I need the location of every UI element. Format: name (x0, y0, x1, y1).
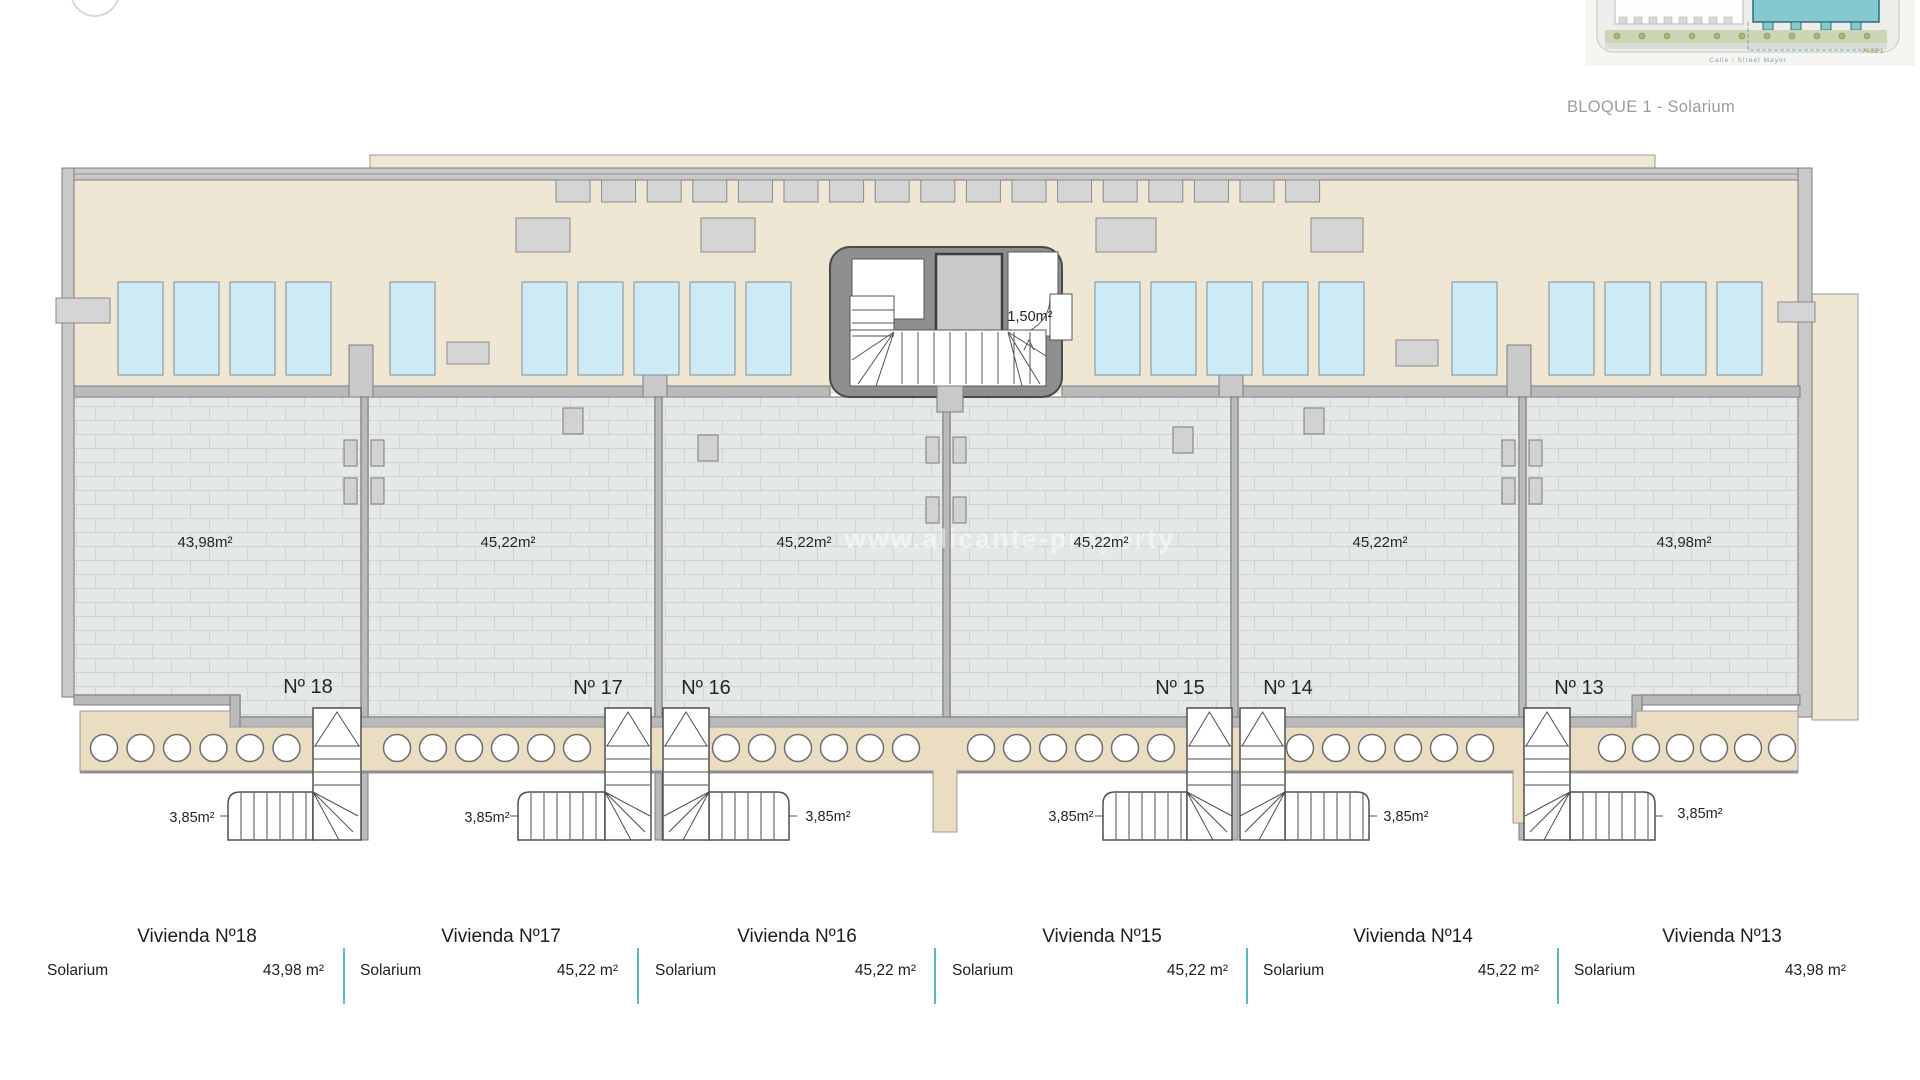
planter (384, 735, 411, 762)
planter (91, 735, 118, 762)
planter (1667, 735, 1694, 762)
roof-vent (693, 180, 727, 202)
solar-panel (174, 282, 219, 375)
party-wall (655, 397, 662, 717)
solar-panel (690, 282, 735, 375)
logo-arc-icon (71, 0, 119, 16)
planter (713, 735, 740, 762)
right-terrace-extension (1812, 294, 1858, 720)
ac-unit (1096, 218, 1156, 252)
party-wall-stub (349, 345, 373, 397)
planter (1395, 735, 1422, 762)
stair-area-label: 3,85m² (464, 810, 509, 826)
ac-unit (516, 218, 570, 252)
unit-number-label: Nº 17 (573, 677, 623, 700)
planter (1076, 735, 1103, 762)
party-wall (361, 397, 368, 717)
planter (821, 735, 848, 762)
ac-unit (447, 342, 489, 364)
chimney-vent (926, 497, 939, 523)
solar-panel (1207, 282, 1252, 375)
left-wall (62, 168, 74, 697)
planter (785, 735, 812, 762)
planter (1735, 735, 1762, 762)
deck-solarium-wall-left (74, 386, 830, 397)
roof-vent (738, 180, 772, 202)
stair-flight (1187, 708, 1232, 840)
solar-panel (578, 282, 623, 375)
stairwell-stub (937, 386, 963, 412)
ac-unit (56, 298, 110, 323)
stair-run (709, 792, 789, 840)
roof-vent (1286, 180, 1320, 202)
party-wall (1231, 397, 1238, 717)
planter (1769, 735, 1796, 762)
roof-vent (784, 180, 818, 202)
chimney-vent (1529, 440, 1542, 466)
planter (200, 735, 227, 762)
site-plan-inset: FASE 1 Calle / Street Mayor (1585, 0, 1915, 66)
roof-vent (1103, 180, 1137, 202)
planter (492, 735, 519, 762)
unit-area-label: 43,98m² (1656, 534, 1711, 551)
ac-unit (1311, 218, 1363, 252)
solar-panel (390, 282, 435, 375)
roof-vent (966, 180, 1000, 202)
stair-flight (605, 708, 651, 840)
unit-area-label: 45,22m² (776, 534, 831, 551)
unit-area-label: 45,22m² (1352, 534, 1407, 551)
solar-panel (286, 282, 331, 375)
chimney-vent (344, 440, 357, 466)
planter (164, 735, 191, 762)
planter (1467, 735, 1494, 762)
planter (1359, 735, 1386, 762)
planter (1323, 735, 1350, 762)
solar-panel (634, 282, 679, 375)
door-leaf (1050, 294, 1072, 340)
solar-panel (1661, 282, 1706, 375)
unit-number-label: Nº 14 (1263, 677, 1313, 700)
unit-number-label: Nº 13 (1554, 677, 1604, 700)
party-wall-stub (1507, 345, 1531, 397)
planter (857, 735, 884, 762)
solar-panel (746, 282, 791, 375)
planter (749, 735, 776, 762)
chimney-vent (371, 478, 384, 504)
stair-flight (313, 708, 361, 840)
unit-area-label: 45,22m² (480, 534, 535, 551)
roof-vent (875, 180, 909, 202)
ac-unit (1778, 302, 1815, 322)
solarium-14-floor (1238, 397, 1519, 717)
ac-unit (701, 218, 755, 252)
planter (1040, 735, 1067, 762)
site-plan-drawing: FASE 1 Calle / Street Mayor (1585, 0, 1915, 66)
deck-solarium-wall-right (1062, 386, 1800, 397)
roof-vent (556, 180, 590, 202)
solar-panel (1263, 282, 1308, 375)
planter (1148, 735, 1175, 762)
planter (273, 735, 300, 762)
stairwell-core (830, 247, 1072, 412)
chimney-vent (1304, 408, 1324, 434)
roof-vent (1149, 180, 1183, 202)
planter (1112, 735, 1139, 762)
stair-run-bottom (850, 330, 1046, 386)
right-wall (1798, 168, 1812, 717)
planter (1004, 735, 1031, 762)
chimney-vent (344, 478, 357, 504)
chimney-vent (371, 440, 384, 466)
planter (968, 735, 995, 762)
unit-area-label: 45,22m² (1073, 534, 1128, 551)
unit-number-label: Nº 15 (1155, 677, 1205, 700)
street-label: Calle / Street Mayor (1709, 57, 1786, 64)
unit-number-label: Nº 16 (681, 677, 731, 700)
solar-panel (1319, 282, 1364, 375)
walkway-center-descender (933, 770, 957, 832)
solar-panel (230, 282, 275, 375)
solar-panel (1452, 282, 1497, 375)
chimney-vent (926, 437, 939, 463)
planter (237, 735, 264, 762)
planter (1431, 735, 1458, 762)
stair-flight (1240, 708, 1285, 840)
solar-panel (1549, 282, 1594, 375)
stair-flight (663, 708, 709, 840)
solar-panel (1151, 282, 1196, 375)
chimney-vent (1502, 478, 1515, 504)
site-building-highlighted (1753, 0, 1879, 22)
planter (1701, 735, 1728, 762)
planter (528, 735, 555, 762)
planter (420, 735, 447, 762)
planter (893, 735, 920, 762)
solar-panel (1717, 282, 1762, 375)
party-wall (1519, 397, 1526, 717)
stair-area-label: 3,85m² (805, 809, 850, 825)
unit-number-label: Nº 18 (283, 676, 333, 699)
chimney-vent (1529, 478, 1542, 504)
planter (1599, 735, 1626, 762)
stair-area-label: 3,85m² (169, 810, 214, 826)
chimney-vent (1173, 427, 1193, 453)
stair-flight (1524, 708, 1570, 840)
solar-panel (522, 282, 567, 375)
planter (127, 735, 154, 762)
roof-vent (1194, 180, 1228, 202)
solar-panel (1095, 282, 1140, 375)
stairwell-area-label: 1,50m² (1007, 309, 1052, 325)
floorplan-page: FASE 1 Calle / Street Mayor BLOQUE 1 - S… (0, 0, 1920, 1080)
stair-area-label: 3,85m² (1383, 809, 1428, 825)
solarium-17-floor (368, 397, 655, 717)
planter (456, 735, 483, 762)
roof-vent (1240, 180, 1274, 202)
chimney-vent (698, 435, 718, 461)
chimney-vent (953, 437, 966, 463)
solarium-18-floor (74, 397, 361, 717)
solar-panel (118, 282, 163, 375)
party-wall (943, 397, 950, 717)
solarium-13-floor (1526, 397, 1798, 717)
roof-vent (647, 180, 681, 202)
roof-vent (1012, 180, 1046, 202)
elevator-shaft (936, 254, 1002, 332)
inset-caption: BLOQUE 1 - Solarium (1567, 98, 1735, 117)
unit-area-label: 43,98m² (177, 534, 232, 551)
planter (1287, 735, 1314, 762)
roof-vent (1058, 180, 1092, 202)
ac-unit (1396, 340, 1438, 366)
phase-label: FASE 1 (1863, 49, 1884, 55)
solar-panel (1605, 282, 1650, 375)
planter (1633, 735, 1660, 762)
planter (564, 735, 591, 762)
roof-vent (830, 180, 864, 202)
chimney-vent (953, 497, 966, 523)
roof-vent (921, 180, 955, 202)
stair-area-label: 3,85m² (1677, 806, 1722, 822)
roof-vent (602, 180, 636, 202)
chimney-vent (563, 408, 583, 434)
stair-area-label: 3,85m² (1048, 809, 1093, 825)
chimney-vent (1502, 440, 1515, 466)
